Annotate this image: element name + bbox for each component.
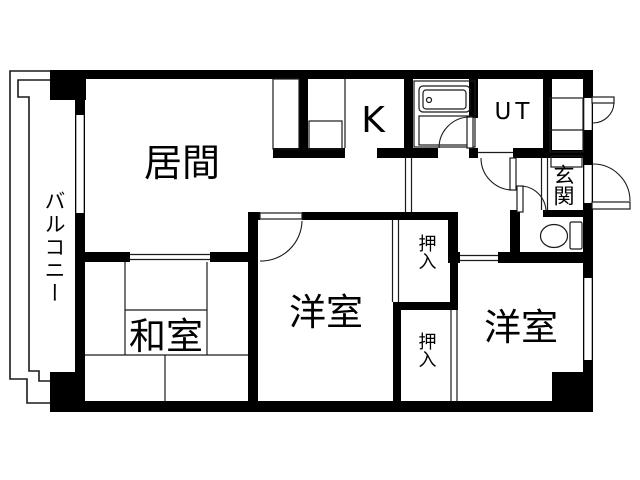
front-door-leaf	[592, 202, 630, 209]
bedroom2-window	[584, 278, 591, 360]
wall-toilet-left	[510, 210, 520, 257]
floor-plan-svg: 居間 K UT 和室 洋室 洋室 玄関 押入 押入 バルコニー	[0, 0, 640, 480]
wall-bath-bottom-corner	[469, 148, 478, 158]
wall-closet2-left	[393, 310, 401, 402]
wall-kitchen-bath-divider	[404, 79, 413, 158]
floor-plan-image: 居間 K UT 和室 洋室 洋室 玄関 押入 押入 バルコニー	[0, 0, 640, 480]
wall-bedroom1-left	[248, 220, 258, 402]
wall-closet1-right	[450, 220, 458, 302]
wall-bottom-right-corner	[552, 372, 593, 412]
bath-door-leaf	[467, 117, 473, 148]
front-door-opening	[584, 165, 591, 203]
closet-2-label: 押入	[416, 332, 437, 368]
wall-bath-bottom	[404, 148, 438, 158]
western-room-1-label: 洋室	[289, 291, 363, 334]
wall-bottom	[50, 401, 593, 412]
utility-door-leaf	[510, 158, 516, 190]
living-room-label: 居間	[144, 141, 220, 185]
wall-top	[50, 70, 593, 79]
toilet-door-leaf	[517, 186, 523, 212]
japanese-room-label: 和室	[129, 315, 203, 358]
wall-entrance-top	[543, 150, 585, 158]
wall-toilet-top	[543, 210, 593, 217]
storage-exterior-opening	[584, 98, 591, 130]
bedroom1-door-leaf	[260, 213, 302, 219]
wall-bedroom1-top	[302, 212, 458, 220]
entrance-label: 玄関	[551, 164, 575, 206]
wall-kitchen-cabinet-divider	[299, 79, 308, 150]
wall-utility-right	[543, 70, 552, 158]
western-room-2-label: 洋室	[484, 306, 558, 349]
closet-1-label: 押入	[416, 234, 437, 270]
wall-top-left-corner	[50, 70, 86, 100]
wall-bedroom1-top-stub	[248, 212, 260, 220]
wall-washitsu-top-right	[210, 252, 258, 262]
living-balcony-window	[76, 115, 83, 213]
wall-closet-divider	[393, 302, 458, 310]
kitchen-label: K	[361, 100, 386, 141]
storage-door-leaf	[592, 97, 614, 103]
wall-bedroom2-top	[498, 252, 593, 263]
balcony-label: バルコニー	[42, 190, 66, 305]
utility-label: UT	[495, 99, 534, 125]
wall-washitsu-top-left	[82, 252, 130, 262]
